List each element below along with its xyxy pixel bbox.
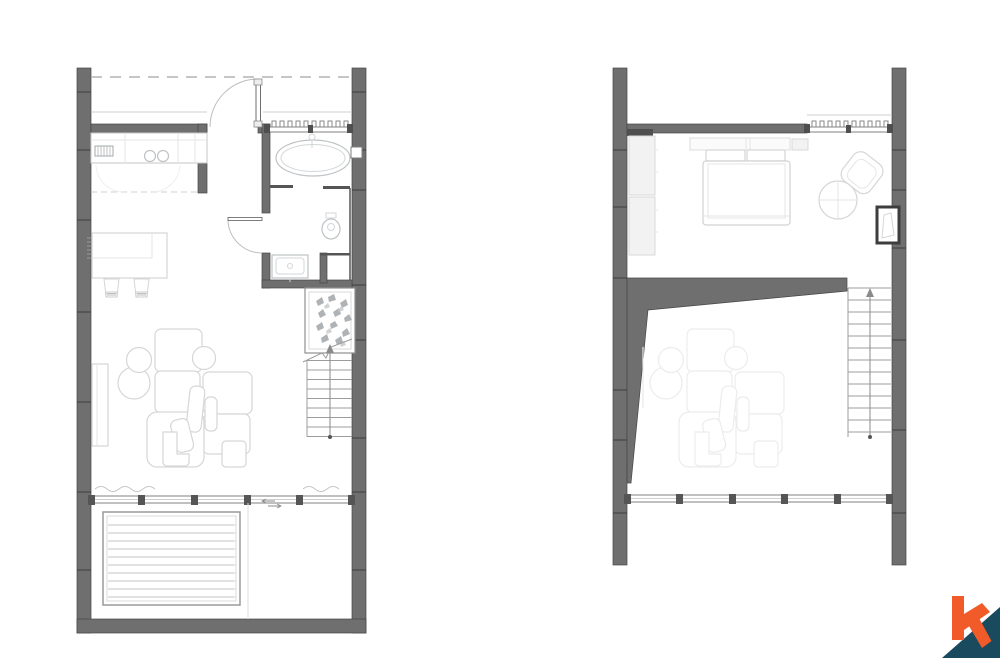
curtain-left xyxy=(95,487,155,492)
wall-window-niche xyxy=(877,207,899,243)
ghost-sofa-below xyxy=(650,329,784,467)
brand-logo xyxy=(942,596,1000,658)
curtain-right xyxy=(303,487,339,492)
island-top xyxy=(92,233,167,278)
bathroom-bottom-wall xyxy=(262,280,352,288)
wall-niche xyxy=(351,147,362,158)
bathroom-door xyxy=(228,218,262,254)
wardrobe xyxy=(629,136,658,255)
left-wall xyxy=(613,68,627,565)
mattress xyxy=(703,161,790,225)
headboard xyxy=(690,138,790,150)
tv-cabinet xyxy=(92,364,108,446)
door-leaf xyxy=(256,82,261,127)
upper-floor-plan xyxy=(613,68,906,565)
double-bed xyxy=(690,138,808,225)
pillow xyxy=(747,150,785,161)
round-coffee-table xyxy=(127,348,152,373)
pillow xyxy=(706,150,745,161)
window-wall xyxy=(624,494,893,504)
cushion xyxy=(205,397,217,431)
right-wall xyxy=(892,68,906,565)
floor-plan-sheet xyxy=(0,0,1000,658)
louvre-window xyxy=(264,121,353,133)
door-hinge-top xyxy=(254,79,262,85)
tub-faucet xyxy=(309,134,315,140)
kitchen xyxy=(91,133,207,192)
wall-cap xyxy=(627,129,653,136)
entry-door xyxy=(210,79,262,127)
low-wall-line xyxy=(320,253,350,256)
bathroom-wall-upper xyxy=(262,124,270,213)
staircase-up xyxy=(848,288,891,439)
pool-deck xyxy=(103,512,240,605)
stair-start-dot xyxy=(868,435,872,439)
ground-floor-plan xyxy=(77,68,366,633)
toilet xyxy=(322,213,340,239)
bedside-shelf xyxy=(792,139,808,150)
bathroom xyxy=(228,121,362,282)
door-leaf xyxy=(228,218,262,221)
toilet-stub-wall xyxy=(320,253,327,283)
round-side-table xyxy=(193,347,216,370)
washbasin-vanity xyxy=(272,255,308,282)
door-swing-arc xyxy=(210,79,258,127)
floor-plan-drawing xyxy=(0,0,1000,658)
staircase-up xyxy=(303,339,352,439)
bedroom-wall xyxy=(627,124,807,133)
door-hinge-bottom xyxy=(254,121,262,127)
sofa-set xyxy=(118,329,252,467)
door-swing-arc xyxy=(228,219,262,253)
bedroom xyxy=(629,136,899,255)
bottom-wall xyxy=(77,619,366,633)
bar-stool xyxy=(104,279,119,297)
bar-stool xyxy=(134,279,149,297)
planter-with-plants xyxy=(305,288,355,353)
cabinet-swing-arcs xyxy=(96,165,180,192)
railing-louvre xyxy=(804,121,893,133)
cooktop xyxy=(95,146,113,156)
stair-up-arrow xyxy=(866,288,874,297)
side-table xyxy=(222,441,246,467)
round-table xyxy=(819,181,857,219)
bathtub xyxy=(276,134,350,176)
left-wall xyxy=(77,68,91,633)
glass-partition xyxy=(270,185,350,189)
kitchen-island xyxy=(87,233,167,297)
stair-start-dot xyxy=(328,435,332,439)
kitchen-wall xyxy=(91,124,207,133)
